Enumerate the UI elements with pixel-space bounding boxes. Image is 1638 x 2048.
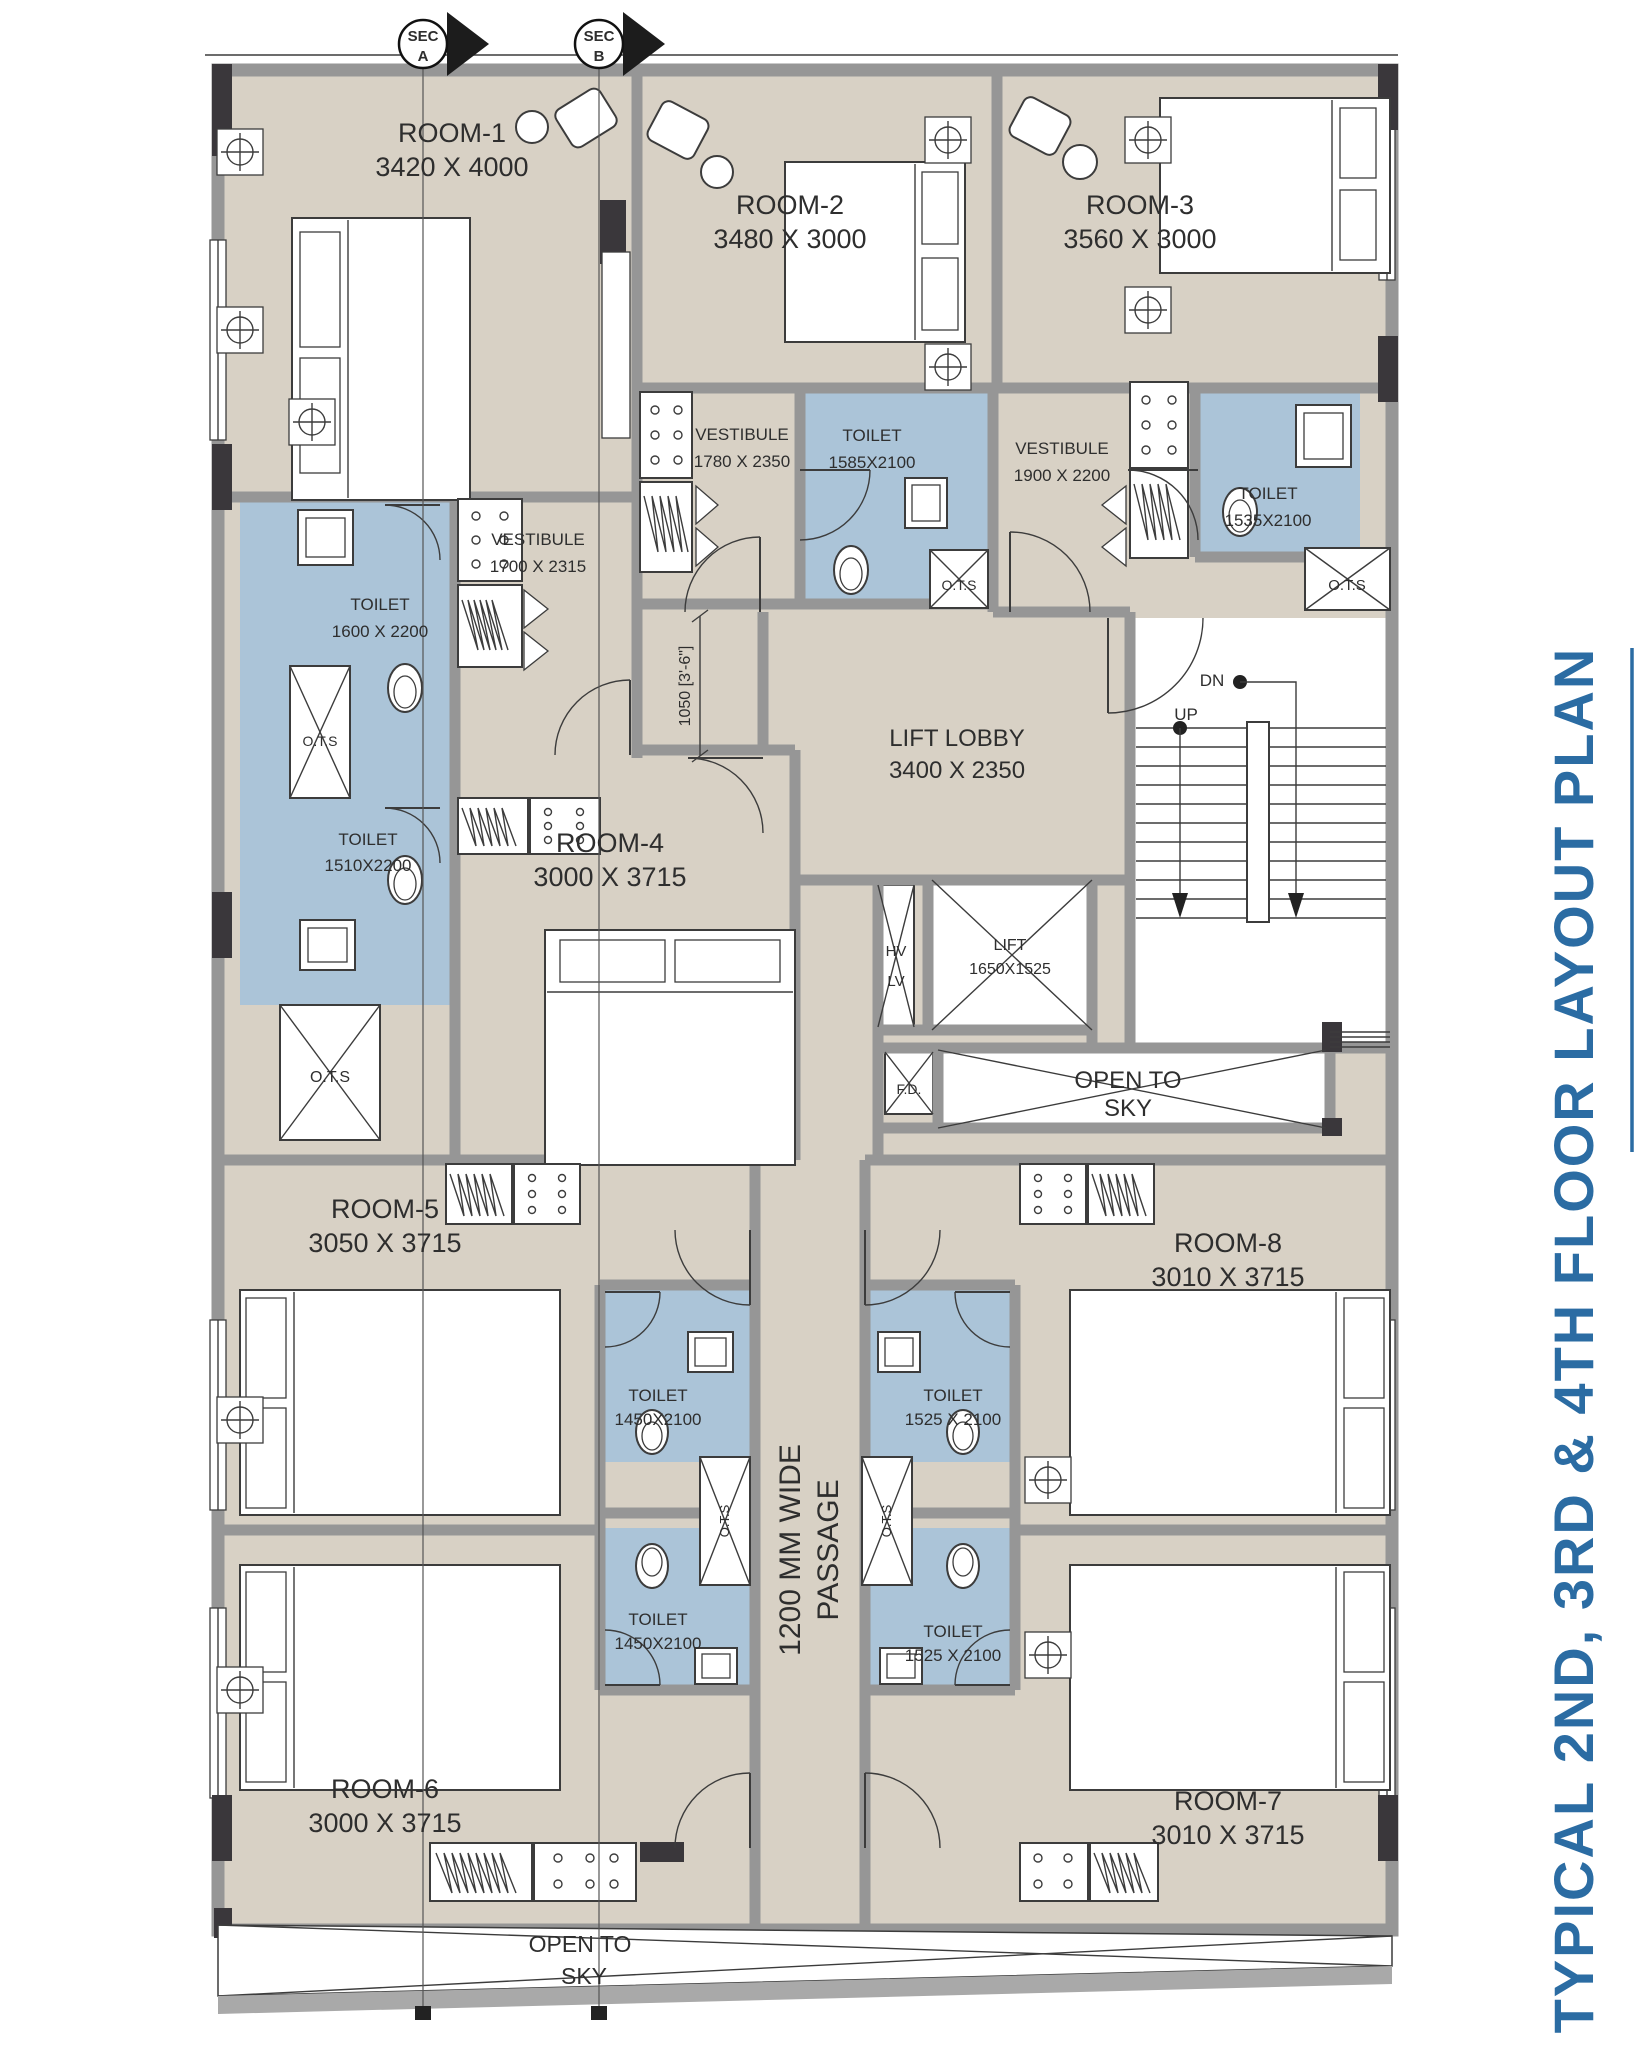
lift-lobby-dim: 3400 X 2350 — [889, 757, 1025, 784]
room-7-label: ROOM-7 — [1174, 1786, 1282, 1816]
room-6-label: ROOM-6 — [331, 1774, 439, 1804]
room5-wardrobe-band — [446, 1164, 580, 1224]
toilet-1510-label: TOILET — [338, 830, 397, 849]
toilet-1535-dim: 1535X2100 — [1225, 511, 1312, 530]
toilet-1585-dim: 1585X2100 — [829, 453, 916, 472]
toilet-1600-dim: 1600 X 2200 — [332, 622, 428, 641]
vestibule-1-dim: 1700 X 2315 — [490, 557, 586, 576]
room-7-dim: 3010 X 3715 — [1151, 1820, 1304, 1850]
toilet-1585-label: TOILET — [842, 426, 901, 445]
lift-dim: 1650X1525 — [969, 961, 1051, 978]
floor-plan-drawing: SEC A SEC B 1050 [3'-6"] ROOM-1 3420 X 4… — [0, 0, 1638, 2048]
sec-b-top: SEC — [584, 28, 615, 45]
room-1-label: ROOM-1 — [398, 118, 506, 148]
hv-label: HV — [886, 943, 907, 960]
open-to-sky-bottom-line1: OPEN TO — [529, 1931, 632, 1957]
vestibule-2-label: VESTIBULE — [695, 425, 789, 444]
toilet-1535-label: TOILET — [1238, 484, 1297, 503]
room-8-dim: 3010 X 3715 — [1151, 1262, 1304, 1292]
toilet-1525b-dim: 1525 X 2100 — [905, 1646, 1001, 1665]
sec-b-bottom: B — [594, 48, 605, 65]
bed-room8 — [1070, 1290, 1390, 1515]
room8-wardrobe-band — [1020, 1164, 1154, 1224]
vestibule-1-label: VESTIBULE — [491, 530, 585, 549]
room-1-dim: 3420 X 4000 — [375, 152, 528, 182]
room-8-label: ROOM-8 — [1174, 1228, 1282, 1258]
ots-right-top-label: O.T.S — [1328, 577, 1366, 594]
sec-a-top: SEC — [408, 28, 439, 45]
toilet-1525b-label: TOILET — [923, 1622, 982, 1641]
bed-room6 — [240, 1565, 560, 1790]
ots-passage-right-label: O.T.S — [879, 1504, 894, 1537]
room-2-label: ROOM-2 — [736, 190, 844, 220]
dressing-counter-room1 — [602, 252, 630, 438]
ots-box-left-upper — [290, 666, 350, 798]
toilet-1525a-dim: 1525 X 2100 — [905, 1410, 1001, 1429]
bed-room7 — [1070, 1565, 1390, 1790]
stairs-dn-label: DN — [1200, 671, 1225, 690]
room-4-label: ROOM-4 — [556, 828, 664, 858]
room-4-dim: 3000 X 3715 — [533, 862, 686, 892]
open-to-sky-mid-line2: SKY — [1104, 1095, 1152, 1122]
fd-label: F.D. — [897, 1081, 922, 1097]
toilet-1450a-label: TOILET — [628, 1386, 687, 1405]
room-3-dim: 3560 X 3000 — [1063, 224, 1216, 254]
toilet-1525-upper-region — [865, 1285, 1015, 1462]
toilet-1600-label: TOILET — [350, 595, 409, 614]
lift-lobby-label: LIFT LOBBY — [889, 725, 1025, 752]
room-6-dim: 3000 X 3715 — [308, 1808, 461, 1838]
ots-passage-left-label: O.T.S — [717, 1504, 732, 1537]
ots-mid-top-label: O.T.S — [941, 577, 976, 593]
passage-line2: PASSAGE — [812, 1479, 845, 1620]
room7-wardrobe-band — [1020, 1843, 1158, 1901]
ots-left-lower-label: O.T.S — [310, 1069, 350, 1086]
lv-label: LV — [887, 973, 904, 990]
floor-plan-page: SEC A SEC B 1050 [3'-6"] ROOM-1 3420 X 4… — [0, 0, 1638, 2048]
room-5-dim: 3050 X 3715 — [308, 1228, 461, 1258]
toilet-1510-dim: 1510X2200 — [325, 856, 412, 875]
toilet-1450a-dim: 1450X2100 — [615, 1410, 702, 1429]
toilet-1450-upper-region — [600, 1285, 750, 1462]
bed-room4 — [545, 930, 795, 1165]
vestibule-2-dim: 1780 X 2350 — [694, 452, 790, 471]
vestibule-3-dim: 1900 X 2200 — [1014, 466, 1110, 485]
sec-a-bottom: A — [418, 48, 429, 65]
toilet-1450b-label: TOILET — [628, 1610, 687, 1629]
room-2-dim: 3480 X 3000 — [713, 224, 866, 254]
toilet-1525a-label: TOILET — [923, 1386, 982, 1405]
bed-room1 — [292, 218, 470, 500]
open-to-sky-bottom-line2: SKY — [561, 1963, 607, 1989]
vest2-dresser — [640, 392, 692, 478]
open-to-sky-mid-line1: OPEN TO — [1074, 1067, 1181, 1094]
room6-wardrobe-band — [430, 1843, 636, 1901]
stairs-up-label: UP — [1174, 705, 1198, 724]
vestibule-3-label: VESTIBULE — [1015, 439, 1109, 458]
open-to-sky-bottom-strip — [218, 1925, 1392, 2014]
drawing-title: TYPICAL 2ND, 3RD & 4TH FLOOR LAYOUT PLAN — [1542, 647, 1605, 2034]
passage-line1: 1200 MM WIDE — [774, 1444, 807, 1656]
room-3-label: ROOM-3 — [1086, 190, 1194, 220]
stair-stringer — [1247, 722, 1269, 922]
room-5-label: ROOM-5 — [331, 1194, 439, 1224]
bed-room5 — [240, 1290, 560, 1515]
toilet-1450b-dim: 1450X2100 — [615, 1634, 702, 1653]
lobby-dimension-text: 1050 [3'-6"] — [677, 646, 694, 727]
vest3-dresser — [1130, 382, 1188, 468]
ots-left-upper-label: O.T.S — [302, 733, 337, 749]
lift-label: LIFT — [994, 937, 1027, 954]
